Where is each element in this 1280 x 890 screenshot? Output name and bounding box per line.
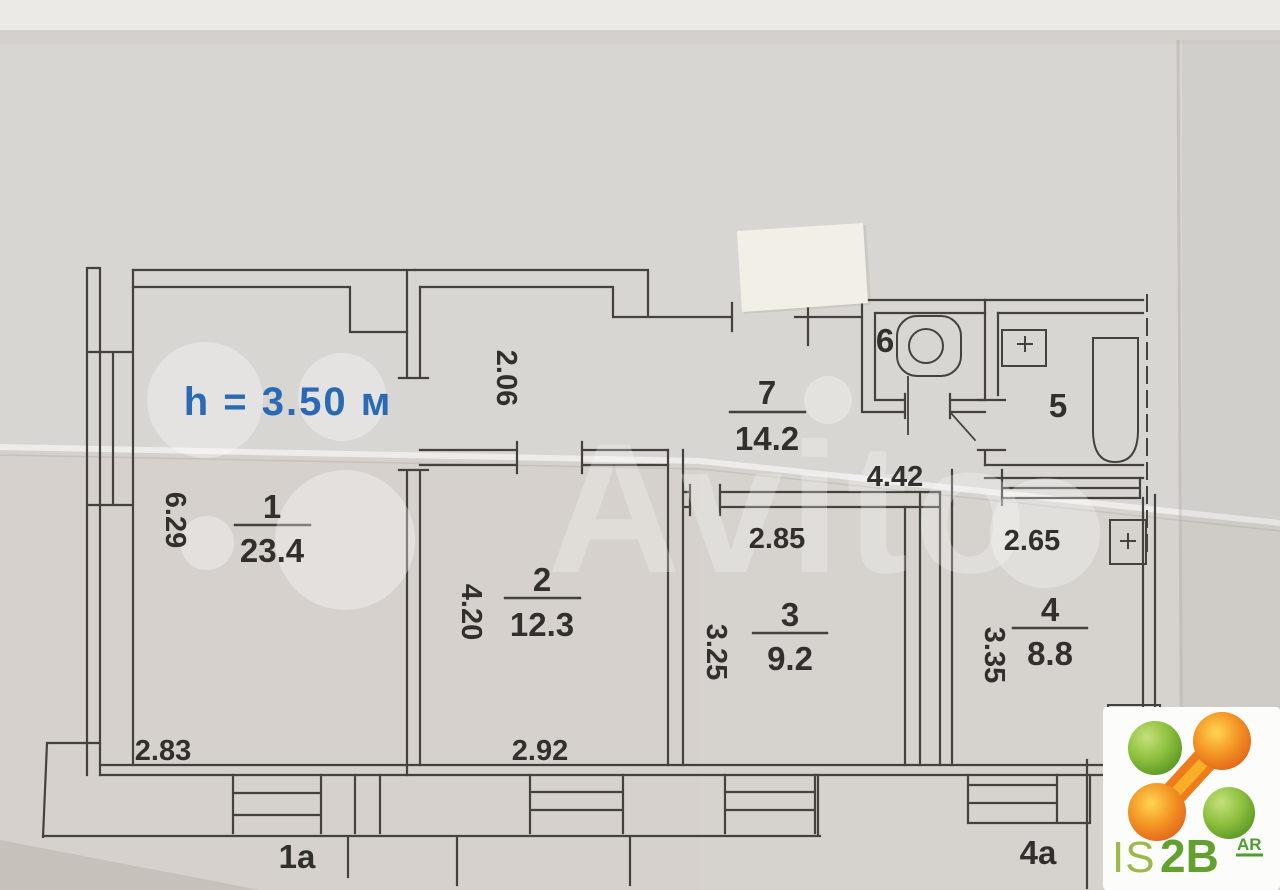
- logo-text-ar: AR: [1237, 835, 1262, 854]
- svg-text:IS 2B: IS 2B: [1112, 830, 1219, 882]
- dim-room3-height: 3.25: [700, 624, 732, 680]
- dim-room1-height: 6.29: [159, 492, 191, 548]
- room7-number: 7: [758, 374, 776, 411]
- room4-number: 4: [1041, 591, 1060, 628]
- dim-room2-bottom: 2.92: [512, 735, 568, 767]
- sticker: [737, 223, 871, 314]
- ceiling-height-label: h = 3.50 м: [184, 380, 393, 424]
- dim-room3-top: 2.85: [749, 523, 805, 555]
- dim-room4-height: 3.35: [978, 627, 1010, 683]
- dim-corridor-length: 4.42: [867, 461, 923, 493]
- balcony-4a-label: 4a: [1020, 834, 1057, 871]
- logo-text-2b: 2B: [1160, 830, 1219, 882]
- scanned-floor-plan: Avito 6.29 2.83 2.06 4.20 2.92 2.85 3.25…: [0, 0, 1280, 890]
- balcony-1a-label: 1a: [279, 838, 316, 875]
- is2b-logo: IS 2B AR: [1103, 707, 1280, 890]
- dim-hall-width: 2.06: [490, 350, 522, 406]
- room7-area: 14.2: [735, 420, 799, 457]
- room1-number: 1: [263, 488, 281, 525]
- dim-room2-height: 4.20: [455, 584, 487, 640]
- room3-area: 9.2: [767, 640, 813, 677]
- room5-number: 5: [1049, 387, 1067, 424]
- room3-number: 3: [781, 596, 799, 633]
- room4-area: 8.8: [1027, 635, 1073, 672]
- dim-room1-bottom: 2.83: [135, 735, 191, 767]
- room1-area: 23.4: [240, 532, 305, 569]
- room2-area: 12.3: [510, 606, 574, 643]
- room2-number: 2: [533, 561, 551, 598]
- logo-text-is: IS: [1112, 833, 1156, 882]
- dim-room4-top: 2.65: [1004, 525, 1060, 557]
- room6-number: 6: [876, 322, 894, 359]
